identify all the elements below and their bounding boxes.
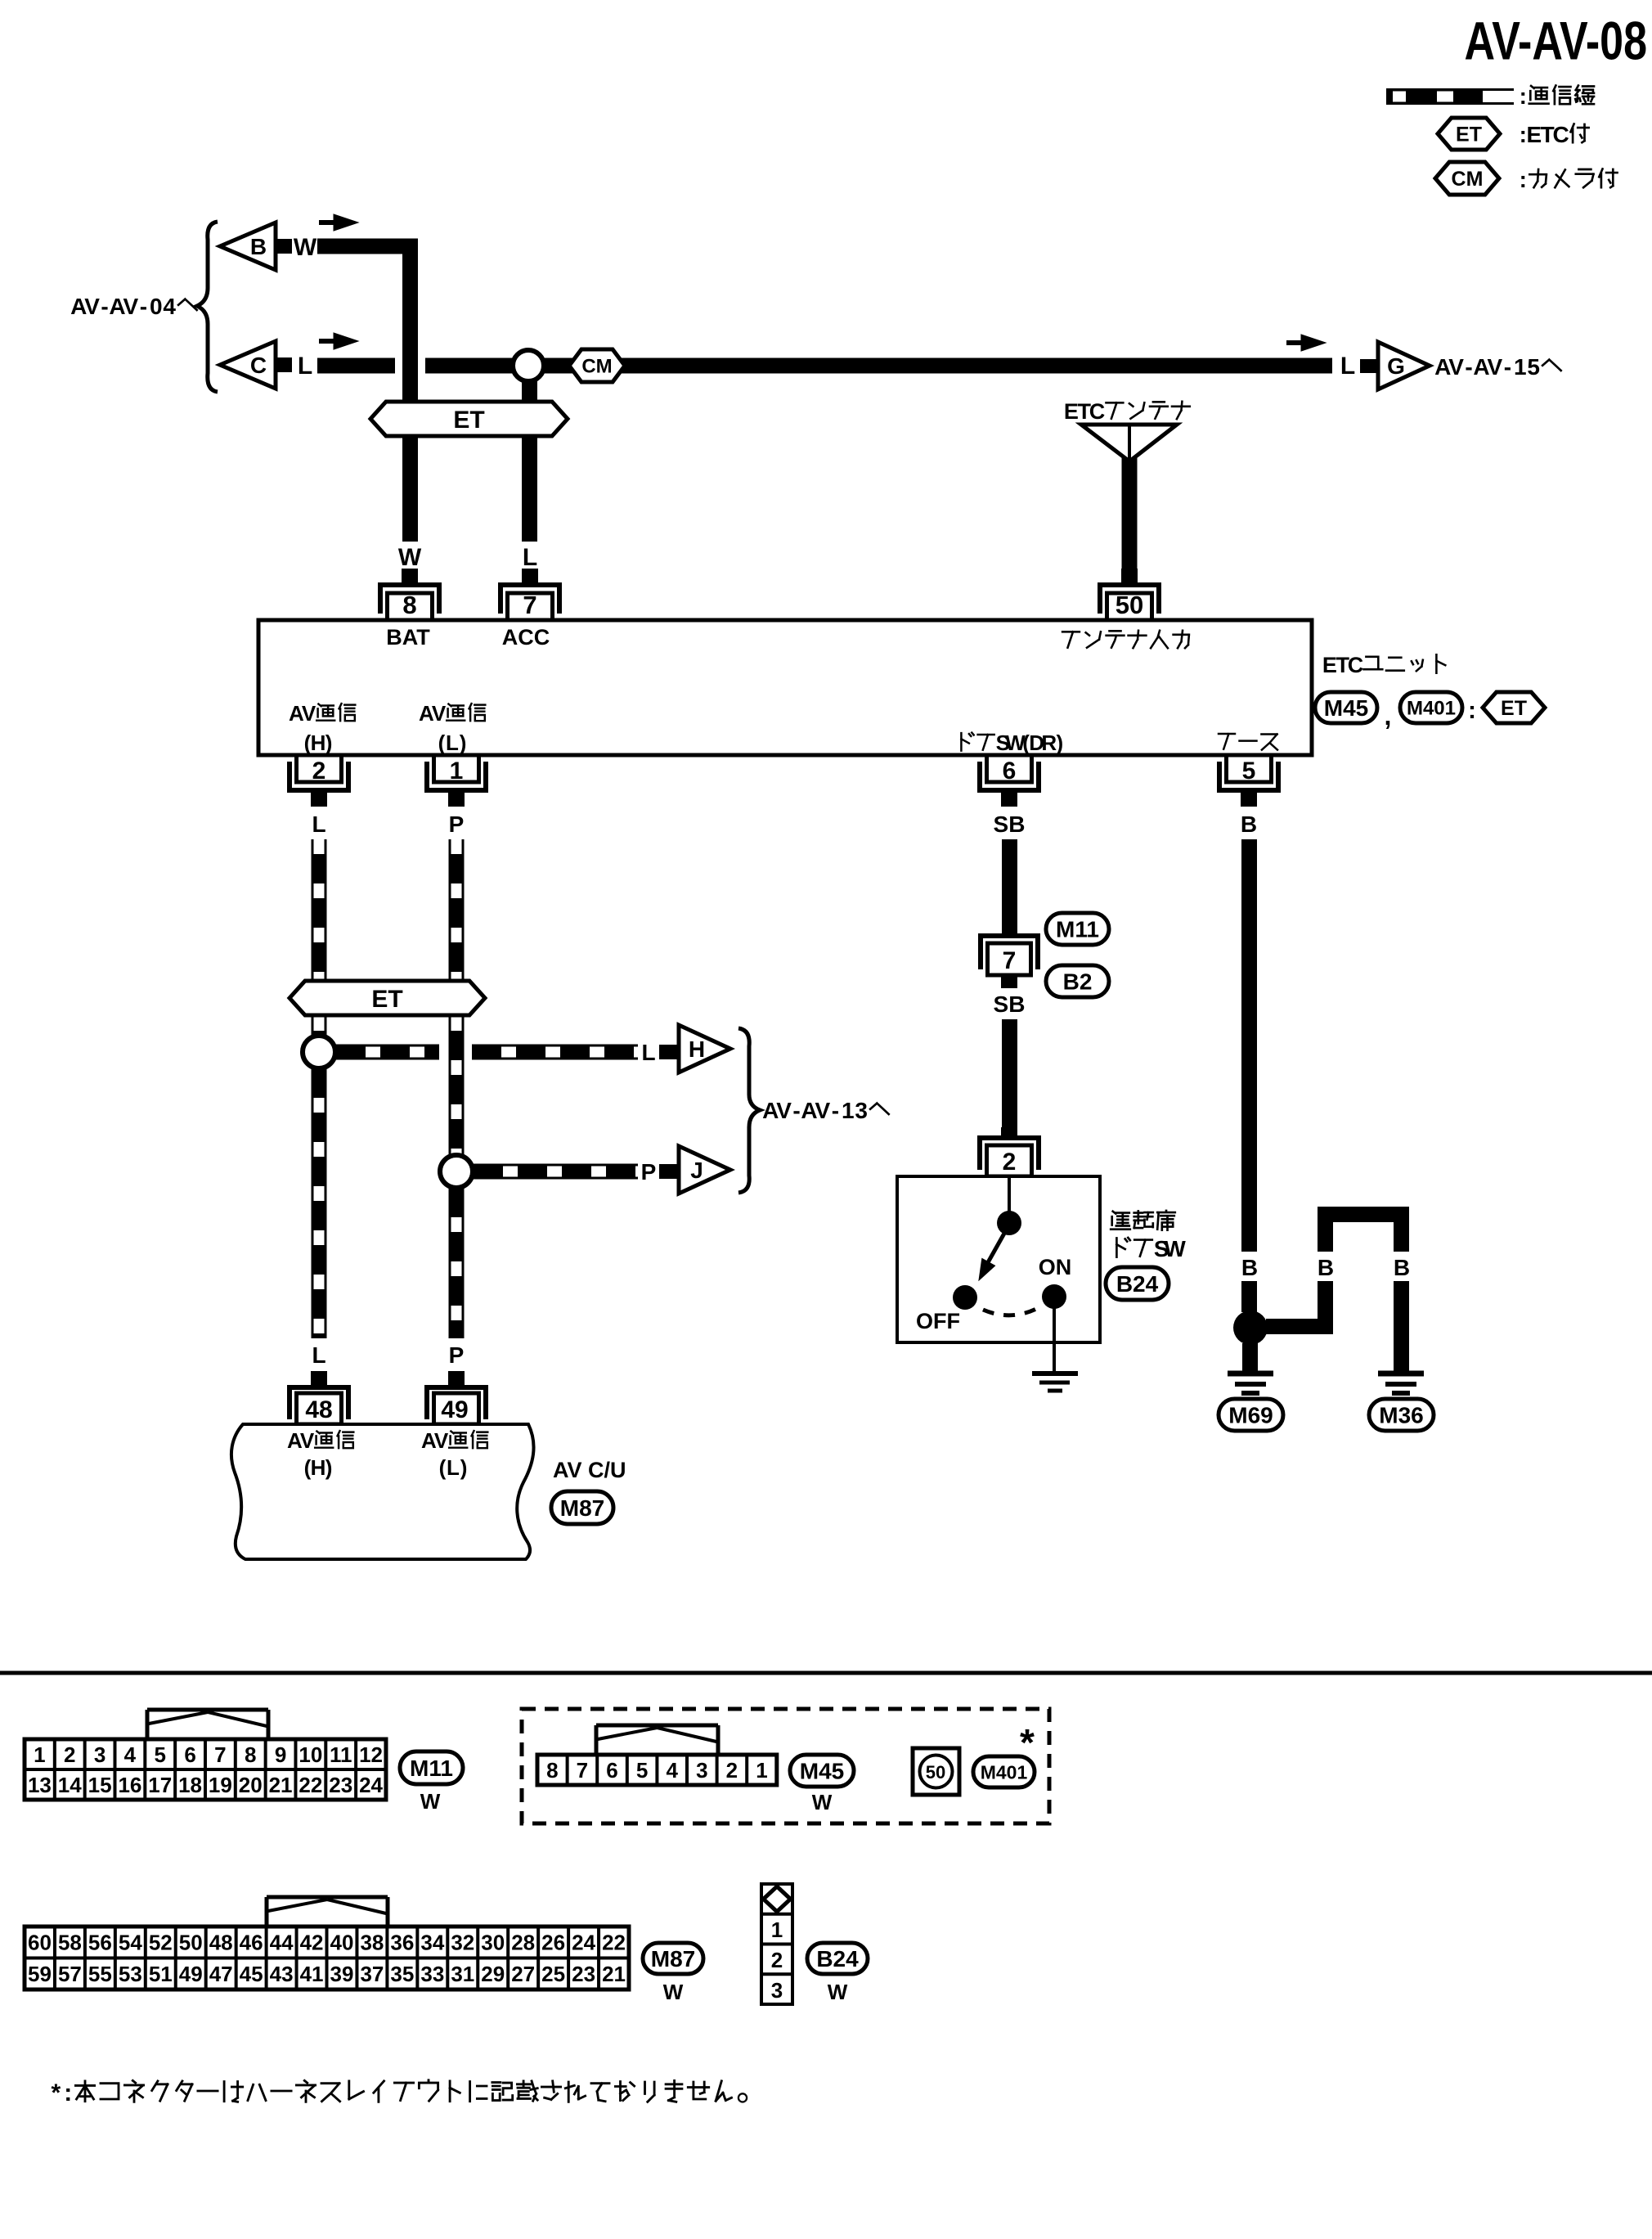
svg-text:W: W — [663, 1980, 684, 2004]
svg-text:19: 19 — [209, 1773, 232, 1797]
svg-text:23: 23 — [329, 1773, 352, 1797]
svg-text:18: 18 — [178, 1773, 202, 1797]
svg-text:): ) — [460, 1455, 468, 1480]
svg-text:V: V — [434, 1428, 449, 1453]
svg-text:M401: M401 — [981, 1761, 1028, 1783]
svg-text:H: H — [311, 731, 326, 755]
svg-text:1: 1 — [771, 1918, 783, 1942]
svg-text:): ) — [325, 731, 333, 755]
svg-text:P: P — [449, 812, 465, 837]
svg-text:B: B — [1318, 1255, 1334, 1280]
svg-text:2: 2 — [312, 758, 326, 785]
svg-text:B24: B24 — [816, 1946, 859, 1971]
svg-text:40: 40 — [330, 1931, 354, 1955]
svg-text:B24: B24 — [1116, 1271, 1159, 1297]
svg-text:AV C/U: AV C/U — [553, 1458, 626, 1482]
svg-text:2: 2 — [1003, 1149, 1017, 1176]
svg-text:16: 16 — [118, 1773, 141, 1797]
svg-text:47: 47 — [209, 1962, 233, 1986]
svg-text:OFF: OFF — [916, 1309, 960, 1333]
svg-text:E: E — [1526, 122, 1542, 147]
svg-text:38: 38 — [360, 1931, 384, 1955]
svg-text:48: 48 — [305, 1396, 332, 1423]
svg-text:3: 3 — [696, 1758, 707, 1783]
svg-text:10: 10 — [299, 1742, 322, 1767]
svg-text:1: 1 — [756, 1758, 767, 1783]
svg-text:22: 22 — [299, 1773, 322, 1797]
svg-text:,: , — [1385, 701, 1392, 731]
svg-text:42: 42 — [300, 1931, 324, 1955]
svg-text:W: W — [398, 544, 422, 571]
svg-text:24: 24 — [359, 1773, 383, 1797]
svg-text:0: 0 — [150, 294, 163, 319]
svg-text:34: 34 — [420, 1931, 444, 1955]
svg-text:4: 4 — [124, 1742, 137, 1767]
svg-text:43: 43 — [270, 1962, 294, 1986]
svg-text:17: 17 — [148, 1773, 172, 1797]
svg-text:23: 23 — [572, 1962, 595, 1986]
svg-text:20: 20 — [239, 1773, 263, 1797]
svg-text:25: 25 — [541, 1962, 565, 1986]
svg-text:55: 55 — [88, 1962, 112, 1986]
svg-text::: : — [64, 2079, 72, 2106]
svg-text:B: B — [250, 234, 267, 259]
svg-text:32: 32 — [451, 1931, 474, 1955]
svg-text:7: 7 — [1003, 947, 1017, 974]
svg-text:1: 1 — [1514, 354, 1527, 380]
svg-text:27: 27 — [511, 1962, 535, 1986]
svg-text:*: * — [1020, 1721, 1035, 1764]
svg-text:B2: B2 — [1063, 969, 1093, 995]
svg-text:50: 50 — [926, 1762, 945, 1783]
svg-text:-: - — [792, 1098, 800, 1123]
svg-text:L: L — [312, 1342, 325, 1368]
svg-text:26: 26 — [541, 1931, 565, 1955]
svg-text:SB: SB — [994, 991, 1026, 1017]
svg-text:12: 12 — [359, 1742, 383, 1767]
svg-text:14: 14 — [58, 1773, 82, 1797]
svg-text:ET: ET — [371, 986, 402, 1013]
svg-text:46: 46 — [240, 1931, 263, 1955]
svg-text:45: 45 — [240, 1962, 263, 1986]
svg-text:): ) — [1057, 731, 1064, 755]
svg-text:11: 11 — [330, 1742, 352, 1767]
svg-text:V: V — [1488, 354, 1503, 380]
svg-text:1: 1 — [450, 758, 464, 785]
svg-text:60: 60 — [28, 1931, 52, 1955]
svg-text:5: 5 — [1242, 758, 1256, 785]
svg-text:28: 28 — [511, 1931, 535, 1955]
svg-text:15: 15 — [88, 1773, 112, 1797]
svg-text:E: E — [1064, 399, 1079, 424]
svg-text:ON: ON — [1039, 1255, 1072, 1279]
svg-text:B: B — [1241, 812, 1257, 837]
svg-text:7: 7 — [523, 591, 536, 619]
svg-text:-: - — [1465, 354, 1472, 380]
svg-text:6: 6 — [184, 1742, 195, 1767]
svg-text:22: 22 — [602, 1931, 626, 1955]
svg-text:-: - — [832, 1098, 839, 1123]
svg-text:M87: M87 — [651, 1946, 695, 1971]
svg-text:13: 13 — [28, 1773, 52, 1797]
svg-text:7: 7 — [577, 1758, 588, 1783]
svg-text:V: V — [300, 1428, 315, 1453]
svg-text:V: V — [84, 294, 100, 319]
svg-text:39: 39 — [330, 1962, 354, 1986]
svg-text:V: V — [123, 294, 139, 319]
svg-text:44: 44 — [270, 1931, 294, 1955]
svg-text:8: 8 — [546, 1758, 558, 1783]
svg-text:2: 2 — [726, 1758, 738, 1783]
svg-text:21: 21 — [602, 1962, 626, 1986]
svg-text:30: 30 — [481, 1931, 505, 1955]
svg-text:L: L — [446, 731, 459, 755]
svg-text:1: 1 — [842, 1098, 855, 1123]
svg-text:57: 57 — [58, 1962, 82, 1986]
svg-text:2: 2 — [64, 1742, 75, 1767]
svg-text:BAT: BAT — [386, 625, 430, 650]
svg-text:L: L — [298, 353, 312, 380]
svg-text:E: E — [1322, 653, 1337, 677]
svg-text:(: ( — [438, 731, 446, 755]
svg-text:3: 3 — [855, 1098, 868, 1123]
svg-text:ET: ET — [1501, 697, 1527, 720]
svg-text:49: 49 — [179, 1962, 203, 1986]
svg-text:ET: ET — [1456, 124, 1482, 146]
svg-text:37: 37 — [360, 1962, 384, 1986]
svg-text:M36: M36 — [1379, 1403, 1423, 1428]
svg-text:54: 54 — [119, 1931, 142, 1955]
svg-text:56: 56 — [88, 1931, 112, 1955]
svg-text::: : — [1520, 83, 1527, 109]
svg-text:C: C — [1552, 122, 1569, 147]
svg-text:AV-AV-08: AV-AV-08 — [1465, 10, 1647, 70]
svg-text:58: 58 — [58, 1931, 82, 1955]
svg-text:50: 50 — [179, 1931, 203, 1955]
svg-text:L: L — [523, 544, 537, 571]
svg-text:51: 51 — [149, 1962, 173, 1986]
svg-text:L: L — [312, 812, 325, 837]
svg-text:): ) — [460, 731, 467, 755]
svg-text:M11: M11 — [1056, 917, 1099, 942]
svg-text:3: 3 — [94, 1742, 105, 1767]
svg-text:50: 50 — [1116, 591, 1143, 619]
svg-text:V: V — [432, 701, 447, 726]
svg-text:M45: M45 — [1324, 695, 1368, 721]
svg-text:L: L — [1340, 353, 1355, 380]
svg-text:W: W — [1164, 1236, 1186, 1261]
svg-text:W: W — [420, 1789, 441, 1814]
svg-text:4: 4 — [163, 294, 176, 319]
svg-text:6: 6 — [606, 1758, 617, 1783]
svg-text:2: 2 — [771, 1948, 783, 1972]
svg-text:CM: CM — [1452, 168, 1484, 191]
svg-text:59: 59 — [28, 1962, 52, 1986]
svg-text:SB: SB — [994, 812, 1026, 837]
svg-text:H: H — [689, 1036, 705, 1062]
svg-text:6: 6 — [1003, 758, 1017, 785]
svg-text:(: ( — [439, 1455, 447, 1480]
svg-text:R: R — [1041, 731, 1057, 755]
svg-text:ACC: ACC — [502, 625, 550, 650]
svg-text:CM: CM — [581, 356, 612, 378]
svg-text:33: 33 — [420, 1962, 444, 1986]
svg-text::: : — [1520, 167, 1527, 192]
svg-text:J: J — [690, 1158, 703, 1183]
svg-text:W: W — [828, 1980, 848, 2004]
svg-text:M45: M45 — [800, 1759, 844, 1784]
svg-text:M87: M87 — [560, 1495, 604, 1521]
svg-text:M69: M69 — [1228, 1403, 1273, 1428]
svg-text:V: V — [302, 701, 316, 726]
svg-text:52: 52 — [149, 1931, 173, 1955]
svg-text:35: 35 — [390, 1962, 414, 1986]
svg-text:-: - — [1504, 354, 1511, 380]
svg-text:-: - — [140, 294, 147, 319]
svg-text:29: 29 — [481, 1962, 505, 1986]
svg-text:V: V — [815, 1098, 831, 1123]
svg-text:4: 4 — [666, 1758, 678, 1783]
svg-text:1: 1 — [34, 1742, 45, 1767]
svg-text:9: 9 — [275, 1742, 286, 1767]
svg-text:C: C — [250, 353, 267, 378]
svg-text:49: 49 — [441, 1396, 468, 1423]
svg-text:V: V — [1448, 354, 1464, 380]
svg-text:V: V — [776, 1098, 792, 1123]
svg-text:P: P — [641, 1159, 657, 1185]
svg-text:H: H — [311, 1455, 326, 1480]
svg-text:53: 53 — [119, 1962, 142, 1986]
svg-text:M401: M401 — [1407, 698, 1456, 720]
svg-text:M11: M11 — [410, 1756, 453, 1781]
svg-text:W: W — [812, 1790, 833, 1814]
svg-text:C: C — [1089, 399, 1106, 424]
svg-text:21: 21 — [269, 1773, 293, 1797]
svg-text:24: 24 — [572, 1931, 595, 1955]
svg-text:B: B — [1241, 1255, 1258, 1280]
svg-text:ET: ET — [453, 407, 484, 434]
svg-text:L: L — [641, 1040, 655, 1065]
svg-text:41: 41 — [300, 1962, 324, 1986]
svg-text:-: - — [101, 294, 108, 319]
svg-text:8: 8 — [245, 1742, 256, 1767]
svg-text:5: 5 — [155, 1742, 166, 1767]
svg-text:W: W — [294, 234, 317, 261]
svg-text:G: G — [1387, 353, 1405, 379]
svg-text:7: 7 — [214, 1742, 226, 1767]
svg-text:8: 8 — [402, 591, 416, 619]
svg-text::: : — [1468, 697, 1476, 724]
svg-text:3: 3 — [771, 1978, 783, 2003]
svg-text:L: L — [447, 1455, 460, 1480]
svg-text:31: 31 — [451, 1962, 474, 1986]
svg-text:): ) — [325, 1455, 333, 1480]
svg-text:48: 48 — [209, 1931, 233, 1955]
svg-text:C: C — [1348, 653, 1364, 677]
svg-text:5: 5 — [636, 1758, 648, 1783]
svg-text:36: 36 — [390, 1931, 414, 1955]
svg-text:B: B — [1394, 1255, 1410, 1280]
svg-text:5: 5 — [1527, 354, 1540, 380]
svg-text:*: * — [51, 2079, 61, 2106]
svg-text:P: P — [449, 1342, 465, 1368]
